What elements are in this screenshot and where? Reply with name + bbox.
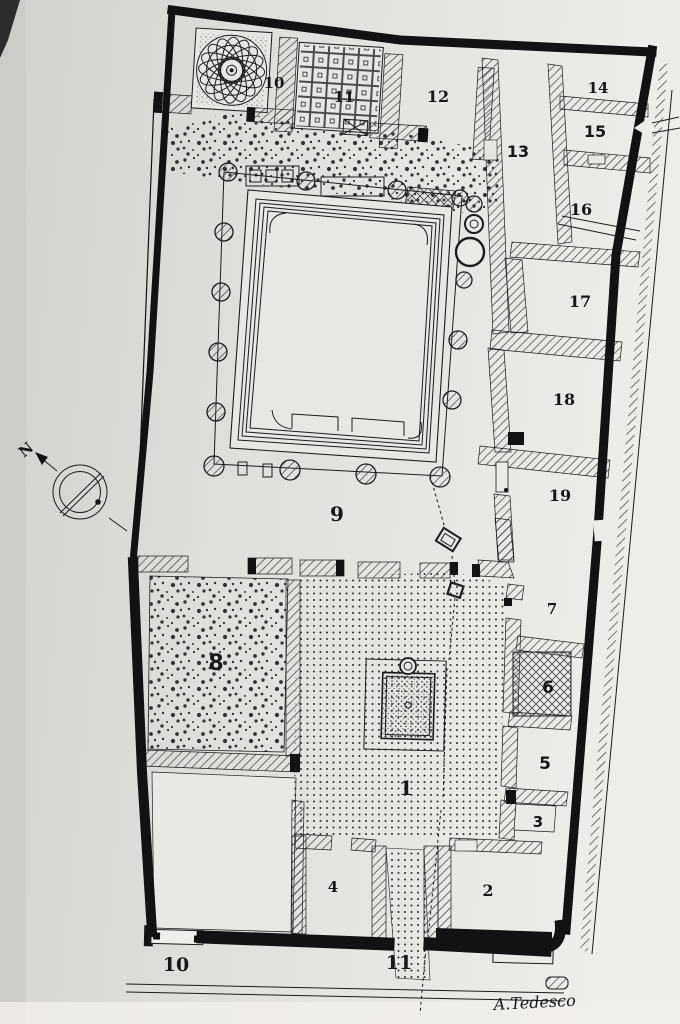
room-label-10-top: 10 <box>264 74 285 92</box>
floor-plan-canvas: N 10 11 12 13 14 15 16 17 18 19 9 8 7 6 … <box>0 0 680 1024</box>
room-label-1: 1 <box>399 776 413 800</box>
fauces-right-wall <box>424 846 438 938</box>
room-label-14: 14 <box>588 79 609 97</box>
room-label-7: 7 <box>547 600 557 618</box>
room-19-door <box>496 462 508 492</box>
room-label-15: 15 <box>584 122 606 141</box>
room-label-3: 3 <box>533 813 543 831</box>
room-label-2: 2 <box>482 881 493 900</box>
downpipe-block <box>546 977 568 989</box>
room-10-rosette-mosaic <box>191 28 272 112</box>
room-4-right-wall <box>372 846 386 938</box>
room-label-13: 13 <box>507 142 529 161</box>
corridor-13-door <box>484 140 497 160</box>
room-label-17: 17 <box>569 292 591 311</box>
room-label-5: 5 <box>539 754 551 774</box>
room-label-8: 8 <box>208 651 223 676</box>
room-label-16: 16 <box>570 200 592 219</box>
room-label-12: 12 <box>427 87 449 106</box>
room-label-9: 9 <box>330 502 344 526</box>
room-2-left-wall <box>438 846 451 932</box>
room-label-19: 19 <box>549 486 571 505</box>
room-label-6: 6 <box>542 678 554 698</box>
room-lower-left <box>152 772 296 932</box>
scanned-floor-plan-page: N 10 11 12 13 14 15 16 17 18 19 9 8 7 6 … <box>0 0 680 1024</box>
room-label-11-top: 11 <box>334 88 355 106</box>
room-label-4: 4 <box>328 878 338 896</box>
entrance-label-10: 10 <box>163 954 189 976</box>
page-bottom-strip <box>0 1002 680 1024</box>
garden-pool <box>230 190 452 462</box>
entrance-label-11: 11 <box>386 952 412 974</box>
room-4-left-wall <box>292 836 306 934</box>
page-edge-shadow <box>0 0 26 1024</box>
room-label-18: 18 <box>553 390 575 409</box>
